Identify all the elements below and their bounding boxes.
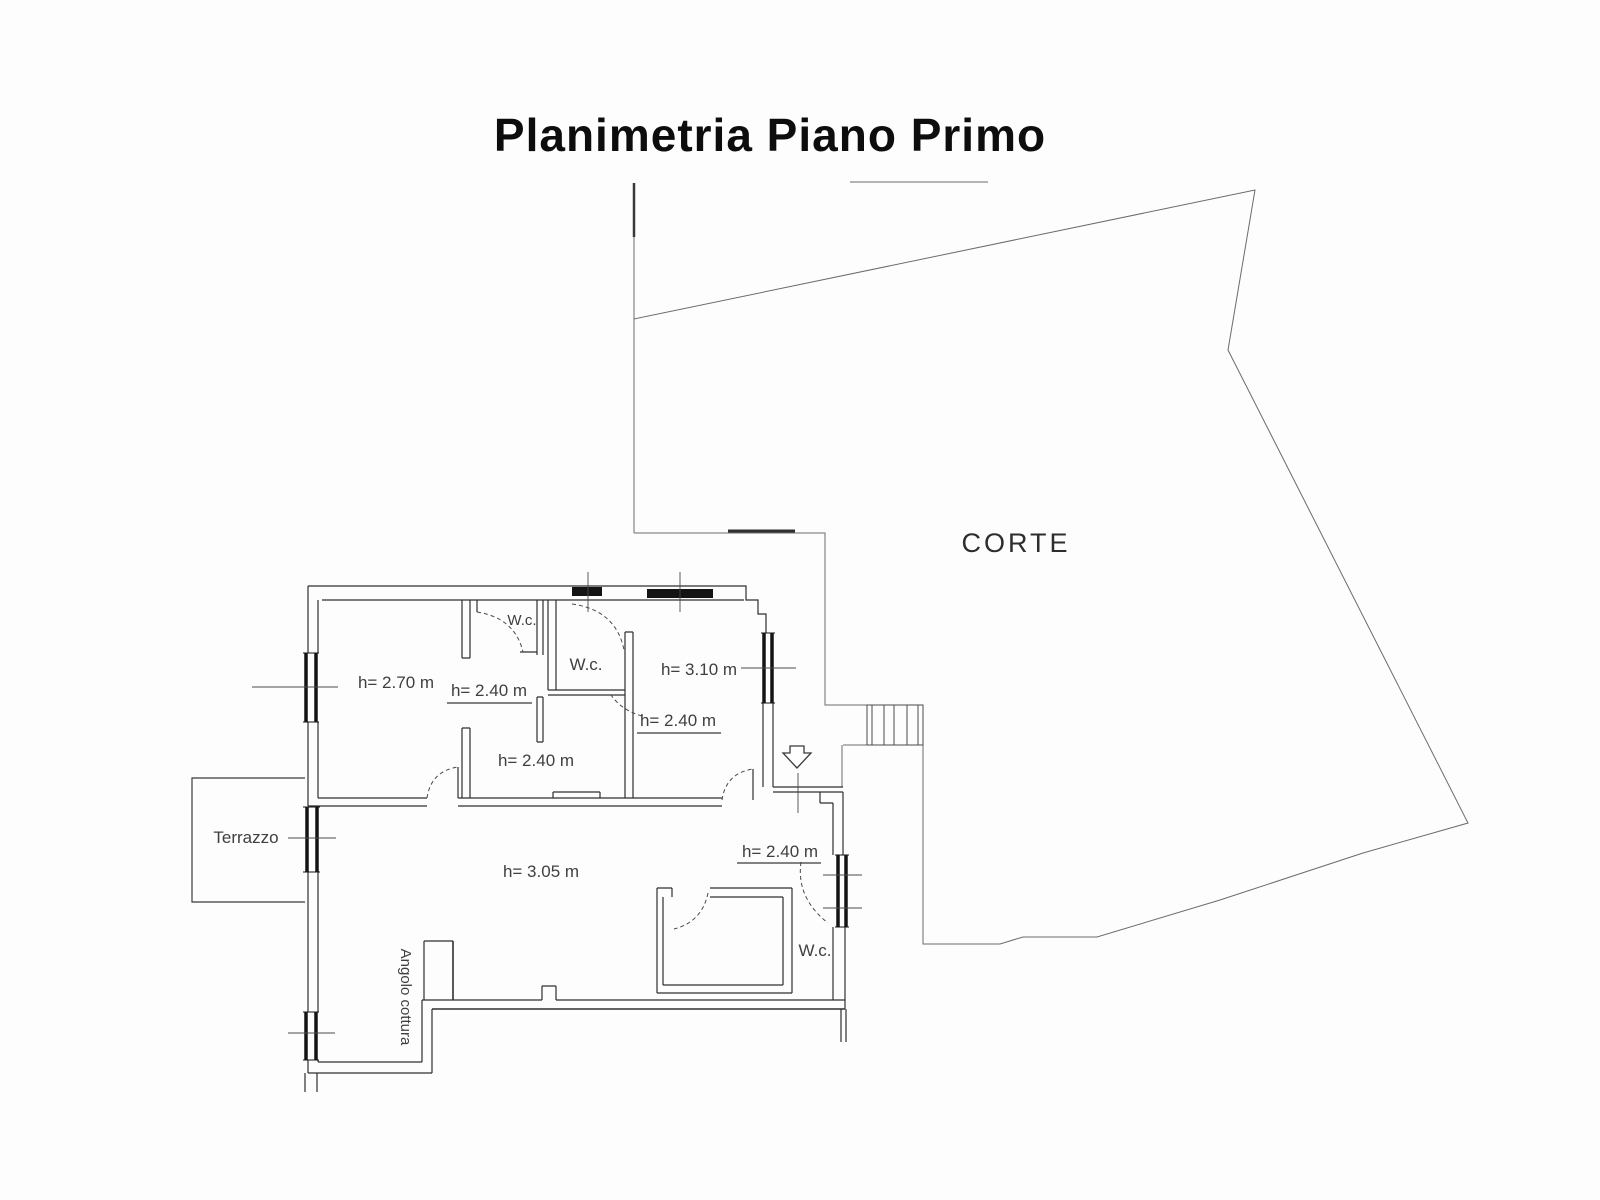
entrance-arrow-icon xyxy=(783,746,811,768)
label-underlines xyxy=(447,703,821,863)
living-h305-label: h= 3.05 m xyxy=(503,862,579,881)
courtyard-boundary xyxy=(634,182,1468,944)
floor-plan-page: Planimetria Piano Primo xyxy=(0,0,1600,1200)
door-leaves xyxy=(458,600,753,800)
wc-middle-label: W.c. xyxy=(569,655,602,674)
courtyard-label: CORTE xyxy=(961,528,1070,558)
room-h270-label: h= 2.70 m xyxy=(358,673,434,692)
door-arcs xyxy=(427,604,828,929)
building-walls-lower xyxy=(305,787,846,1092)
building-walls-upper xyxy=(308,586,773,806)
hall-h240-top-label: h= 2.40 m xyxy=(451,681,527,700)
wc-top-label: W.c. xyxy=(507,612,536,629)
room-h240-right-label: h= 2.40 m xyxy=(640,711,716,730)
floor-plan-drawing: CORTE h= 2.70 m h= 2.40 m W.c. W.c. h= 3… xyxy=(0,0,1600,1200)
corridor-h240-bottom-label: h= 2.40 m xyxy=(742,842,818,861)
kitchenette-label: Angolo cottura xyxy=(397,949,414,1046)
stairs xyxy=(867,705,923,745)
wc-bottom-label: W.c. xyxy=(798,941,831,960)
hall-h240-center-label: h= 2.40 m xyxy=(498,751,574,770)
terrace-label: Terrazzo xyxy=(213,828,278,847)
room-h310-label: h= 3.10 m xyxy=(661,660,737,679)
